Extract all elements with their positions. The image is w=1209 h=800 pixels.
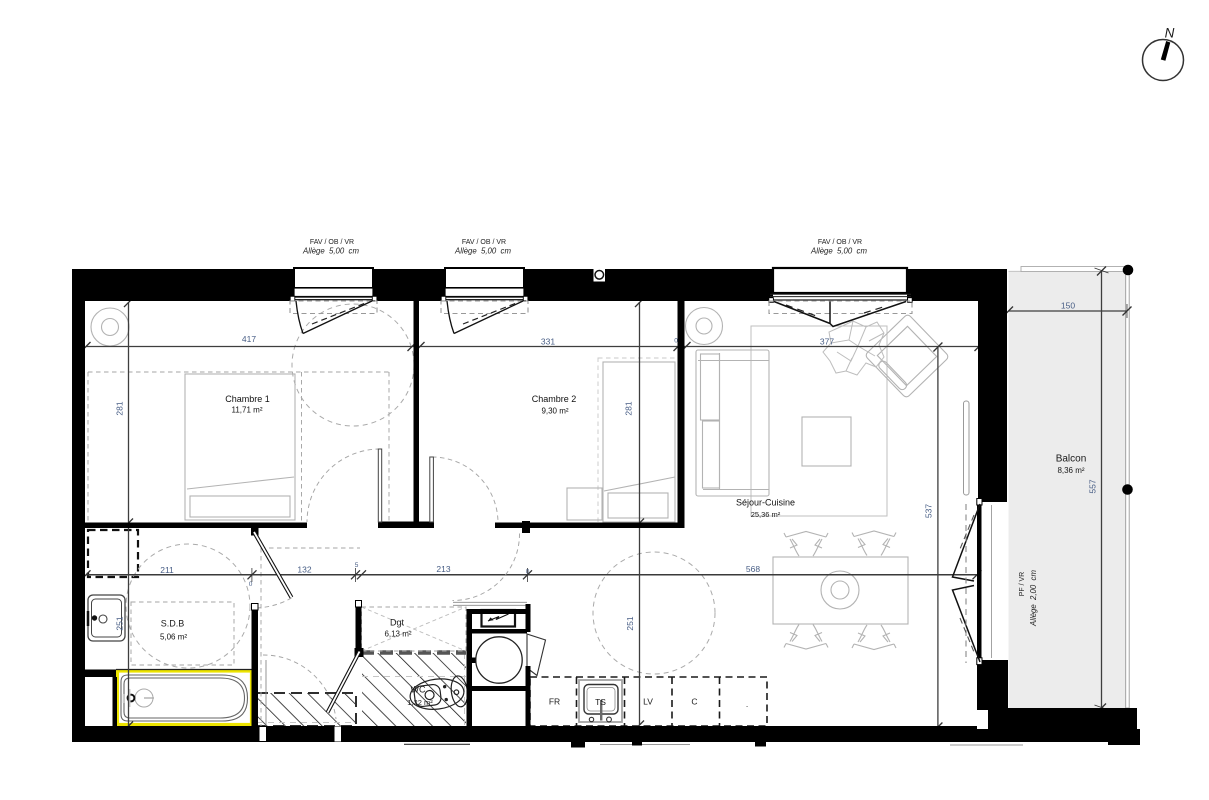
svg-text:FR: FR: [549, 697, 560, 707]
svg-text:25,36 m²: 25,36 m²: [751, 510, 781, 519]
svg-text:150: 150: [1061, 301, 1075, 311]
svg-text:Allège 5,00 cm: Allège 5,00 cm: [454, 247, 511, 256]
svg-text:Allège 5,00 cm: Allège 5,00 cm: [810, 247, 867, 256]
svg-text:1,22 m²: 1,22 m²: [407, 698, 433, 707]
svg-text:LV: LV: [643, 697, 653, 707]
svg-text:8,36 m²: 8,36 m²: [1057, 466, 1084, 475]
svg-text:FAV / OB / VR: FAV / OB / VR: [310, 239, 354, 246]
svg-text:251: 251: [625, 616, 635, 630]
svg-text:5,06 m²: 5,06 m²: [160, 633, 187, 642]
svg-text:557: 557: [1088, 479, 1098, 493]
svg-text:0: 0: [674, 338, 678, 345]
svg-text:331: 331: [541, 337, 555, 347]
svg-text:0: 0: [249, 581, 253, 588]
svg-text:S.D.B: S.D.B: [161, 619, 185, 629]
svg-text:11,71 m²: 11,71 m²: [232, 406, 263, 415]
svg-text:251: 251: [115, 616, 125, 630]
svg-text:5: 5: [355, 562, 359, 569]
svg-text:417: 417: [242, 334, 256, 344]
svg-text:.: .: [746, 699, 748, 709]
svg-text:C: C: [691, 697, 697, 707]
svg-text:211: 211: [160, 565, 174, 575]
svg-text:Chambre 1: Chambre 1: [225, 394, 270, 404]
svg-text:TS: TS: [595, 697, 606, 707]
svg-text:Séjour-Cuisine: Séjour-Cuisine: [736, 498, 795, 508]
svg-text:Allège 2,00 cm: Allège 2,00 cm: [1029, 570, 1038, 627]
svg-text:FAV / OB / VR: FAV / OB / VR: [462, 239, 506, 246]
svg-text:213: 213: [436, 564, 450, 574]
svg-text:568: 568: [746, 564, 760, 574]
svg-text:Dgt: Dgt: [390, 618, 405, 628]
svg-text:FAV / OB / VR: FAV / OB / VR: [818, 239, 862, 246]
svg-text:9,30 m²: 9,30 m²: [541, 407, 568, 416]
svg-text:281: 281: [115, 401, 125, 415]
svg-text:N: N: [1165, 26, 1175, 41]
svg-text:PF / VR: PF / VR: [1019, 572, 1026, 597]
svg-text:281: 281: [624, 401, 634, 415]
svg-text:Balcon: Balcon: [1056, 454, 1087, 465]
svg-text:377: 377: [820, 337, 834, 347]
svg-text:WC: WC: [411, 685, 426, 695]
svg-text:0: 0: [526, 569, 530, 576]
svg-text:6,13 m²: 6,13 m²: [384, 630, 411, 639]
svg-text:132: 132: [297, 565, 311, 575]
svg-text:Allège 5,00 cm: Allège 5,00 cm: [302, 247, 359, 256]
svg-text:537: 537: [924, 504, 934, 518]
svg-text:Chambre 2: Chambre 2: [532, 394, 577, 404]
